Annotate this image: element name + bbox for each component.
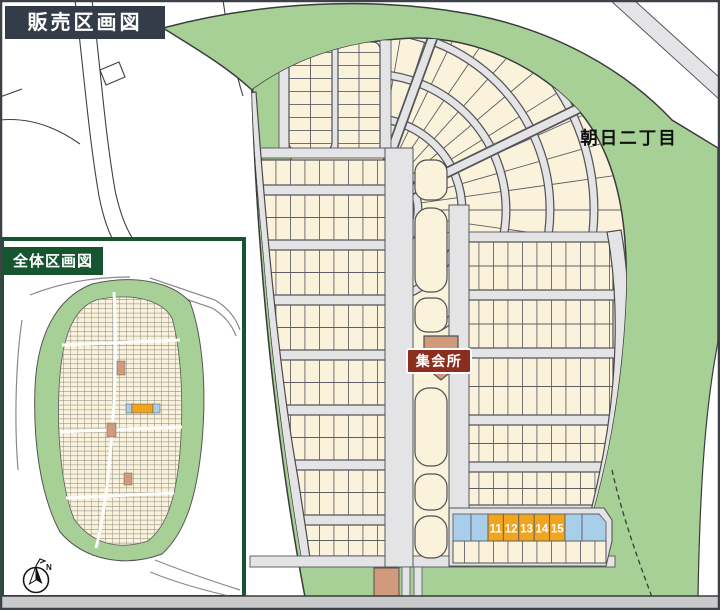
lot-15-number: 15 — [551, 524, 564, 536]
east-lot-rows — [465, 232, 617, 514]
lot-13-number: 13 — [520, 524, 533, 536]
district-label: 朝日二丁目 — [580, 128, 678, 148]
inset-title: 全体区画図 — [12, 252, 93, 270]
compass-north-label: N — [46, 563, 52, 572]
lot-15[interactable]: 15 — [550, 514, 565, 541]
sales-lot-block: 11 12 13 14 15 — [449, 508, 612, 566]
sales-lot-map-image: 11 12 13 14 15 朝日二丁目 集会所 — [0, 0, 720, 610]
meeting-hall-badge-label: 集会所 — [415, 353, 463, 369]
inset-highlight-row — [126, 404, 160, 413]
lot-12[interactable]: 12 — [503, 514, 518, 541]
lot-11-number: 11 — [490, 524, 503, 536]
lot-11[interactable]: 11 — [488, 514, 503, 541]
reserved-lot[interactable] — [565, 514, 582, 541]
reserved-lot[interactable] — [471, 514, 488, 541]
reserved-lot[interactable] — [453, 514, 471, 541]
sales-map-title-badge: 販売区画図 — [5, 6, 165, 39]
reserved-lot[interactable] — [582, 514, 606, 541]
lot-13[interactable]: 13 — [519, 514, 534, 541]
sales-map-title: 販売区画図 — [28, 11, 143, 34]
lot-14[interactable]: 14 — [534, 514, 549, 541]
inset-title-badge: 全体区画図 — [3, 247, 103, 275]
meeting-hall-badge: 集会所 — [407, 349, 471, 373]
lot-14-number: 14 — [536, 524, 549, 536]
overall-map-inset: N 全体区画図 — [2, 239, 244, 598]
lot-12-number: 12 — [505, 524, 518, 536]
facility-lot-south — [374, 568, 399, 597]
